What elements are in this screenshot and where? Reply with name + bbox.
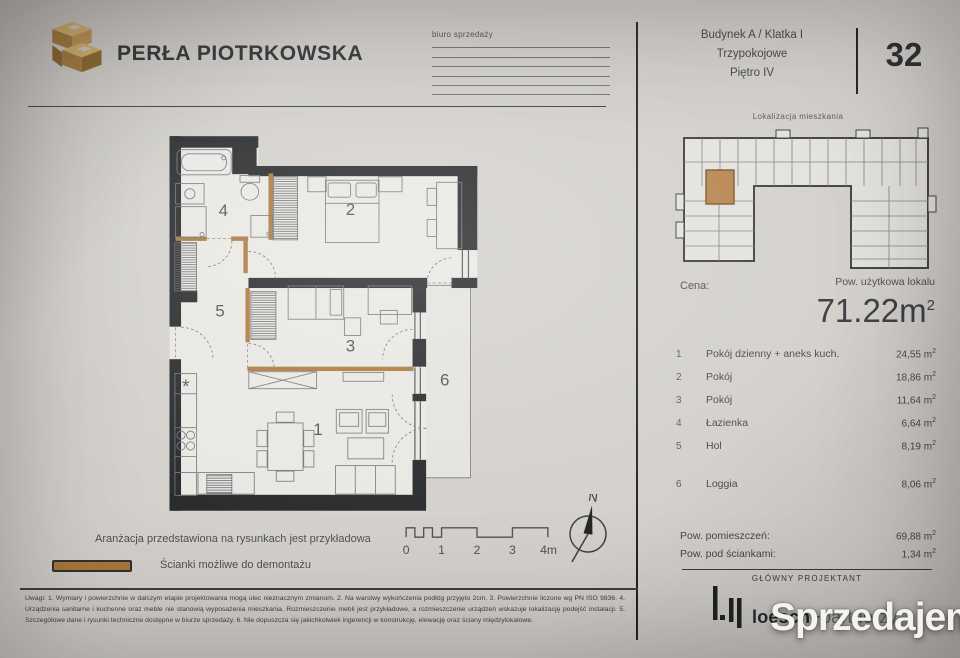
totals-label: Pow. pod ściankami: <box>680 548 902 560</box>
usable-area-number: 71.22m <box>817 292 927 329</box>
totals-row: Pow. pomieszczeń: 69,88 m2 <box>680 530 936 548</box>
office-line <box>432 94 610 95</box>
unit-floor: Piętro IV <box>652 64 852 83</box>
office-line <box>432 57 610 58</box>
unit-header: Budynek A / Klatka I Trzypokojowe Piętro… <box>652 26 852 83</box>
room-area: 6,64 m2 <box>902 417 936 429</box>
office-line <box>432 76 610 77</box>
sales-office-lines <box>432 47 612 95</box>
usable-area-label: Pow. użytkowa lokalu <box>735 276 935 288</box>
room-row: 1 Pokój dzienny + aneks kuch. 24,55 m2 <box>676 348 936 371</box>
location-map-label: Lokalizacja mieszkania <box>652 112 944 121</box>
room-no: 6 <box>676 479 706 490</box>
room-label-4: 4 <box>219 201 228 220</box>
highlighted-unit <box>706 170 734 204</box>
room-name: Pokój <box>706 371 896 383</box>
room-list: 1 Pokój dzienny + aneks kuch. 24,55 m2 2… <box>676 348 936 501</box>
brand-name: PERŁA PIOTRKOWSKA <box>117 42 363 66</box>
room-name: Pokój <box>706 394 897 406</box>
legend-demolition-swatch <box>52 560 132 572</box>
room-no: 5 <box>676 441 706 452</box>
scale-bar-line <box>406 528 548 537</box>
disclaimer-text: Uwagi: 1. Wymiary i powierzchnie w dalsz… <box>25 594 625 627</box>
svg-text:0: 0 <box>403 543 410 557</box>
compass-north-label: N <box>588 494 599 505</box>
usable-area-value: 71.22m2 <box>735 292 935 330</box>
watermark: Sprzedajemy pl <box>770 596 960 640</box>
totals-value: 1,34 m2 <box>902 548 936 560</box>
room-area: 8,19 m2 <box>902 440 936 452</box>
header-divider <box>28 106 606 107</box>
unit-number-divider <box>856 28 858 94</box>
room-name: Pokój dzienny + aneks kuch. <box>706 348 896 360</box>
totals-row: Pow. pod ściankami: 1,34 m2 <box>680 548 936 566</box>
compass-tail <box>572 532 588 563</box>
room-name: Hol <box>706 440 902 452</box>
room-label-6: 6 <box>440 370 449 389</box>
totals-label: Pow. pomieszczeń: <box>680 530 896 542</box>
disclaimer-divider <box>20 588 638 590</box>
scale-bar-labels: 0 1 2 3 4m <box>403 543 557 557</box>
svg-text:1: 1 <box>438 543 445 557</box>
sales-office-block: biuro sprzedaży <box>432 30 612 95</box>
compass-needle <box>584 505 597 535</box>
svg-text:4m: 4m <box>540 543 557 557</box>
unit-number: 32 <box>868 36 940 74</box>
totals-block: Pow. pomieszczeń: 69,88 m2 Pow. pod ścia… <box>680 530 936 566</box>
legend-note: Aranżacja przedstawiona na rysunkach jes… <box>95 533 371 545</box>
watermark-text: Sprzedajemy <box>770 596 960 640</box>
room-name: Loggia <box>706 478 902 490</box>
room-label-2: 2 <box>346 200 355 219</box>
totals-value: 69,88 m2 <box>896 530 936 542</box>
room-area: 18,86 m2 <box>896 371 936 383</box>
brand-logo <box>40 16 104 84</box>
sales-office-label: biuro sprzedaży <box>432 30 612 39</box>
room-area: 11,64 m2 <box>897 394 936 406</box>
svg-text:2: 2 <box>474 543 481 557</box>
designer-label: GŁÓWNY PROJEKTANT <box>682 574 932 583</box>
building-locator-map <box>666 126 958 272</box>
compass: N <box>556 494 620 570</box>
office-line <box>432 47 610 48</box>
room-row: 3 Pokój 11,64 m2 <box>676 394 936 417</box>
room-name: Łazienka <box>706 417 902 429</box>
sink-symbol: * <box>182 376 190 398</box>
unit-type: Trzypokojowe <box>652 45 852 64</box>
designer-logo-mark <box>712 586 742 628</box>
plan-interior <box>170 136 478 511</box>
unit-building: Budynek A / Klatka I <box>652 26 852 45</box>
designer-divider <box>682 569 932 570</box>
price-label: Cena: <box>680 280 709 292</box>
room-row: 5 Hol 8,19 m2 <box>676 440 936 463</box>
room-no: 3 <box>676 395 706 406</box>
room-area: 8,06 m2 <box>902 478 936 490</box>
svg-text:3: 3 <box>509 543 516 557</box>
brand-logo-cubes <box>52 22 101 72</box>
office-line <box>432 85 610 86</box>
room-no: 2 <box>676 372 706 383</box>
room-no: 1 <box>676 349 706 360</box>
room-no: 4 <box>676 418 706 429</box>
room-label-5: 5 <box>215 302 224 321</box>
scale-bar: 0 1 2 3 4m <box>396 505 558 561</box>
usable-area-sup: 2 <box>927 297 935 314</box>
room-row: 6 Loggia 8,06 m2 <box>676 478 936 501</box>
room-label-1: 1 <box>313 420 322 439</box>
floor-plan: * 1 2 3 4 5 6 <box>126 126 533 527</box>
room-row: 2 Pokój 18,86 m2 <box>676 371 936 394</box>
room-label-3: 3 <box>346 336 355 355</box>
room-row: 4 Łazienka 6,64 m2 <box>676 417 936 440</box>
panel-divider <box>636 22 638 640</box>
room-area: 24,55 m2 <box>896 348 936 360</box>
legend-demolition-label: Ścianki możliwe do demontażu <box>160 559 311 571</box>
office-line <box>432 66 610 67</box>
